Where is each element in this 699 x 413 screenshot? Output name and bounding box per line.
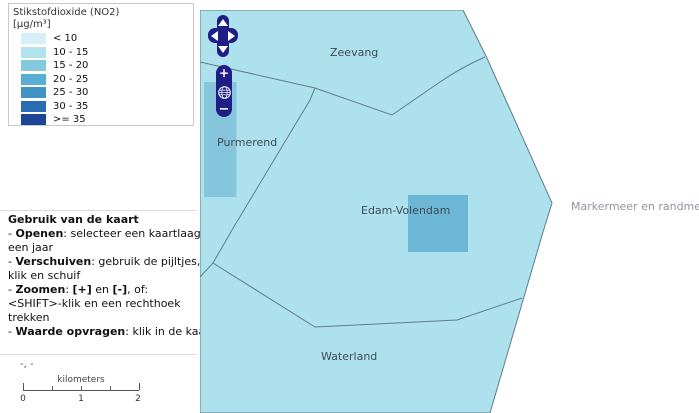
- instruction-line: klik en schuif: [8, 269, 200, 283]
- region-label-zeevang: Zeevang: [330, 46, 378, 59]
- scale-number: 0: [16, 394, 30, 404]
- instructions-body: - Openen: selecteer een kaartlaag eneen …: [8, 227, 200, 339]
- legend-class-row: < 10: [21, 33, 88, 44]
- pan-control: [208, 15, 238, 57]
- legend-title: Stikstofdioxide (NO2): [13, 7, 119, 19]
- legend-color-swatch: [21, 74, 46, 85]
- scale-tick: [110, 386, 111, 390]
- panel-divider: [0, 354, 197, 355]
- region-label-markermeer: Markermeer en randmeren: [571, 200, 699, 213]
- instruction-line: - Verschuiven: gebruik de pijltjes, of: [8, 255, 200, 269]
- instruction-line: - Zoomen: [+] en [-], of:: [8, 283, 200, 297]
- pan-left-arrow-icon[interactable]: [211, 31, 218, 41]
- legend-class-label: 20 - 25: [53, 74, 88, 85]
- scale-bar: kilometers 0 1 2: [0, 373, 200, 407]
- instruction-line: trekken: [8, 311, 200, 325]
- map-viewport[interactable]: Zeevang Purmerend Edam-Volendam Waterlan…: [200, 10, 699, 413]
- legend-class-row: 10 - 15: [21, 47, 88, 58]
- region-label-purmerend: Purmerend: [217, 136, 277, 149]
- zoom-in-button[interactable]: +: [216, 66, 232, 80]
- scale-unit-label: kilometers: [23, 375, 139, 385]
- instruction-line: - Openen: selecteer een kaartlaag en: [8, 227, 200, 241]
- globe-full-extent-icon[interactable]: [218, 84, 231, 97]
- instruction-line: <SHIFT>-klik en een rechthoek: [8, 297, 200, 311]
- legend-color-swatch: [21, 87, 46, 98]
- zoom-out-button[interactable]: −: [216, 103, 232, 117]
- legend-color-swatch: [21, 101, 46, 112]
- scale-number: 2: [131, 394, 145, 404]
- legend-class-row: 25 - 30: [21, 87, 88, 98]
- region-label-waterland: Waterland: [321, 350, 377, 363]
- legend-class-row: >= 35: [21, 114, 88, 125]
- coordinates-readout: -, -: [20, 359, 34, 370]
- legend: Stikstofdioxide (NO2) [µg/m³] < 1010 - 1…: [8, 3, 194, 126]
- legend-classes: < 1010 - 1515 - 2020 - 2525 - 3030 - 35>…: [21, 33, 88, 128]
- scale-tick: [23, 383, 24, 390]
- panel-divider: [0, 210, 197, 211]
- legend-class-label: >= 35: [53, 114, 86, 125]
- scale-line: [23, 390, 139, 391]
- pan-right-arrow-icon[interactable]: [228, 31, 235, 41]
- legend-class-label: < 10: [53, 33, 77, 44]
- instructions-title: Gebruik van de kaart: [8, 213, 200, 227]
- pan-down-arrow-icon[interactable]: [218, 46, 228, 53]
- legend-class-label: 10 - 15: [53, 47, 88, 58]
- map-usage-instructions: Gebruik van de kaart - Openen: selecteer…: [8, 213, 200, 339]
- legend-class-row: 15 - 20: [21, 60, 88, 71]
- legend-subtitle: [µg/m³]: [13, 19, 51, 31]
- legend-color-swatch: [21, 60, 46, 71]
- legend-color-swatch: [21, 33, 46, 44]
- scale-tick: [81, 386, 82, 390]
- instruction-line: een jaar: [8, 241, 200, 255]
- region-label-edam-volendam: Edam-Volendam: [361, 204, 450, 217]
- pan-up-arrow-icon[interactable]: [218, 19, 228, 26]
- legend-color-swatch: [21, 47, 46, 58]
- legend-color-swatch: [21, 114, 46, 125]
- legend-class-label: 25 - 30: [53, 87, 88, 98]
- no2-map-viewer: Stikstofdioxide (NO2) [µg/m³] < 1010 - 1…: [0, 0, 699, 413]
- legend-class-label: 15 - 20: [53, 60, 88, 71]
- scale-tick: [52, 386, 53, 390]
- legend-class-row: 20 - 25: [21, 74, 88, 85]
- legend-class-row: 30 - 35: [21, 101, 88, 112]
- legend-class-label: 30 - 35: [53, 101, 88, 112]
- instruction-line: - Waarde opvragen: klik in de kaart: [8, 325, 200, 339]
- zoom-control: + −: [216, 65, 232, 117]
- scale-number: 1: [74, 394, 88, 404]
- scale-tick: [139, 383, 140, 390]
